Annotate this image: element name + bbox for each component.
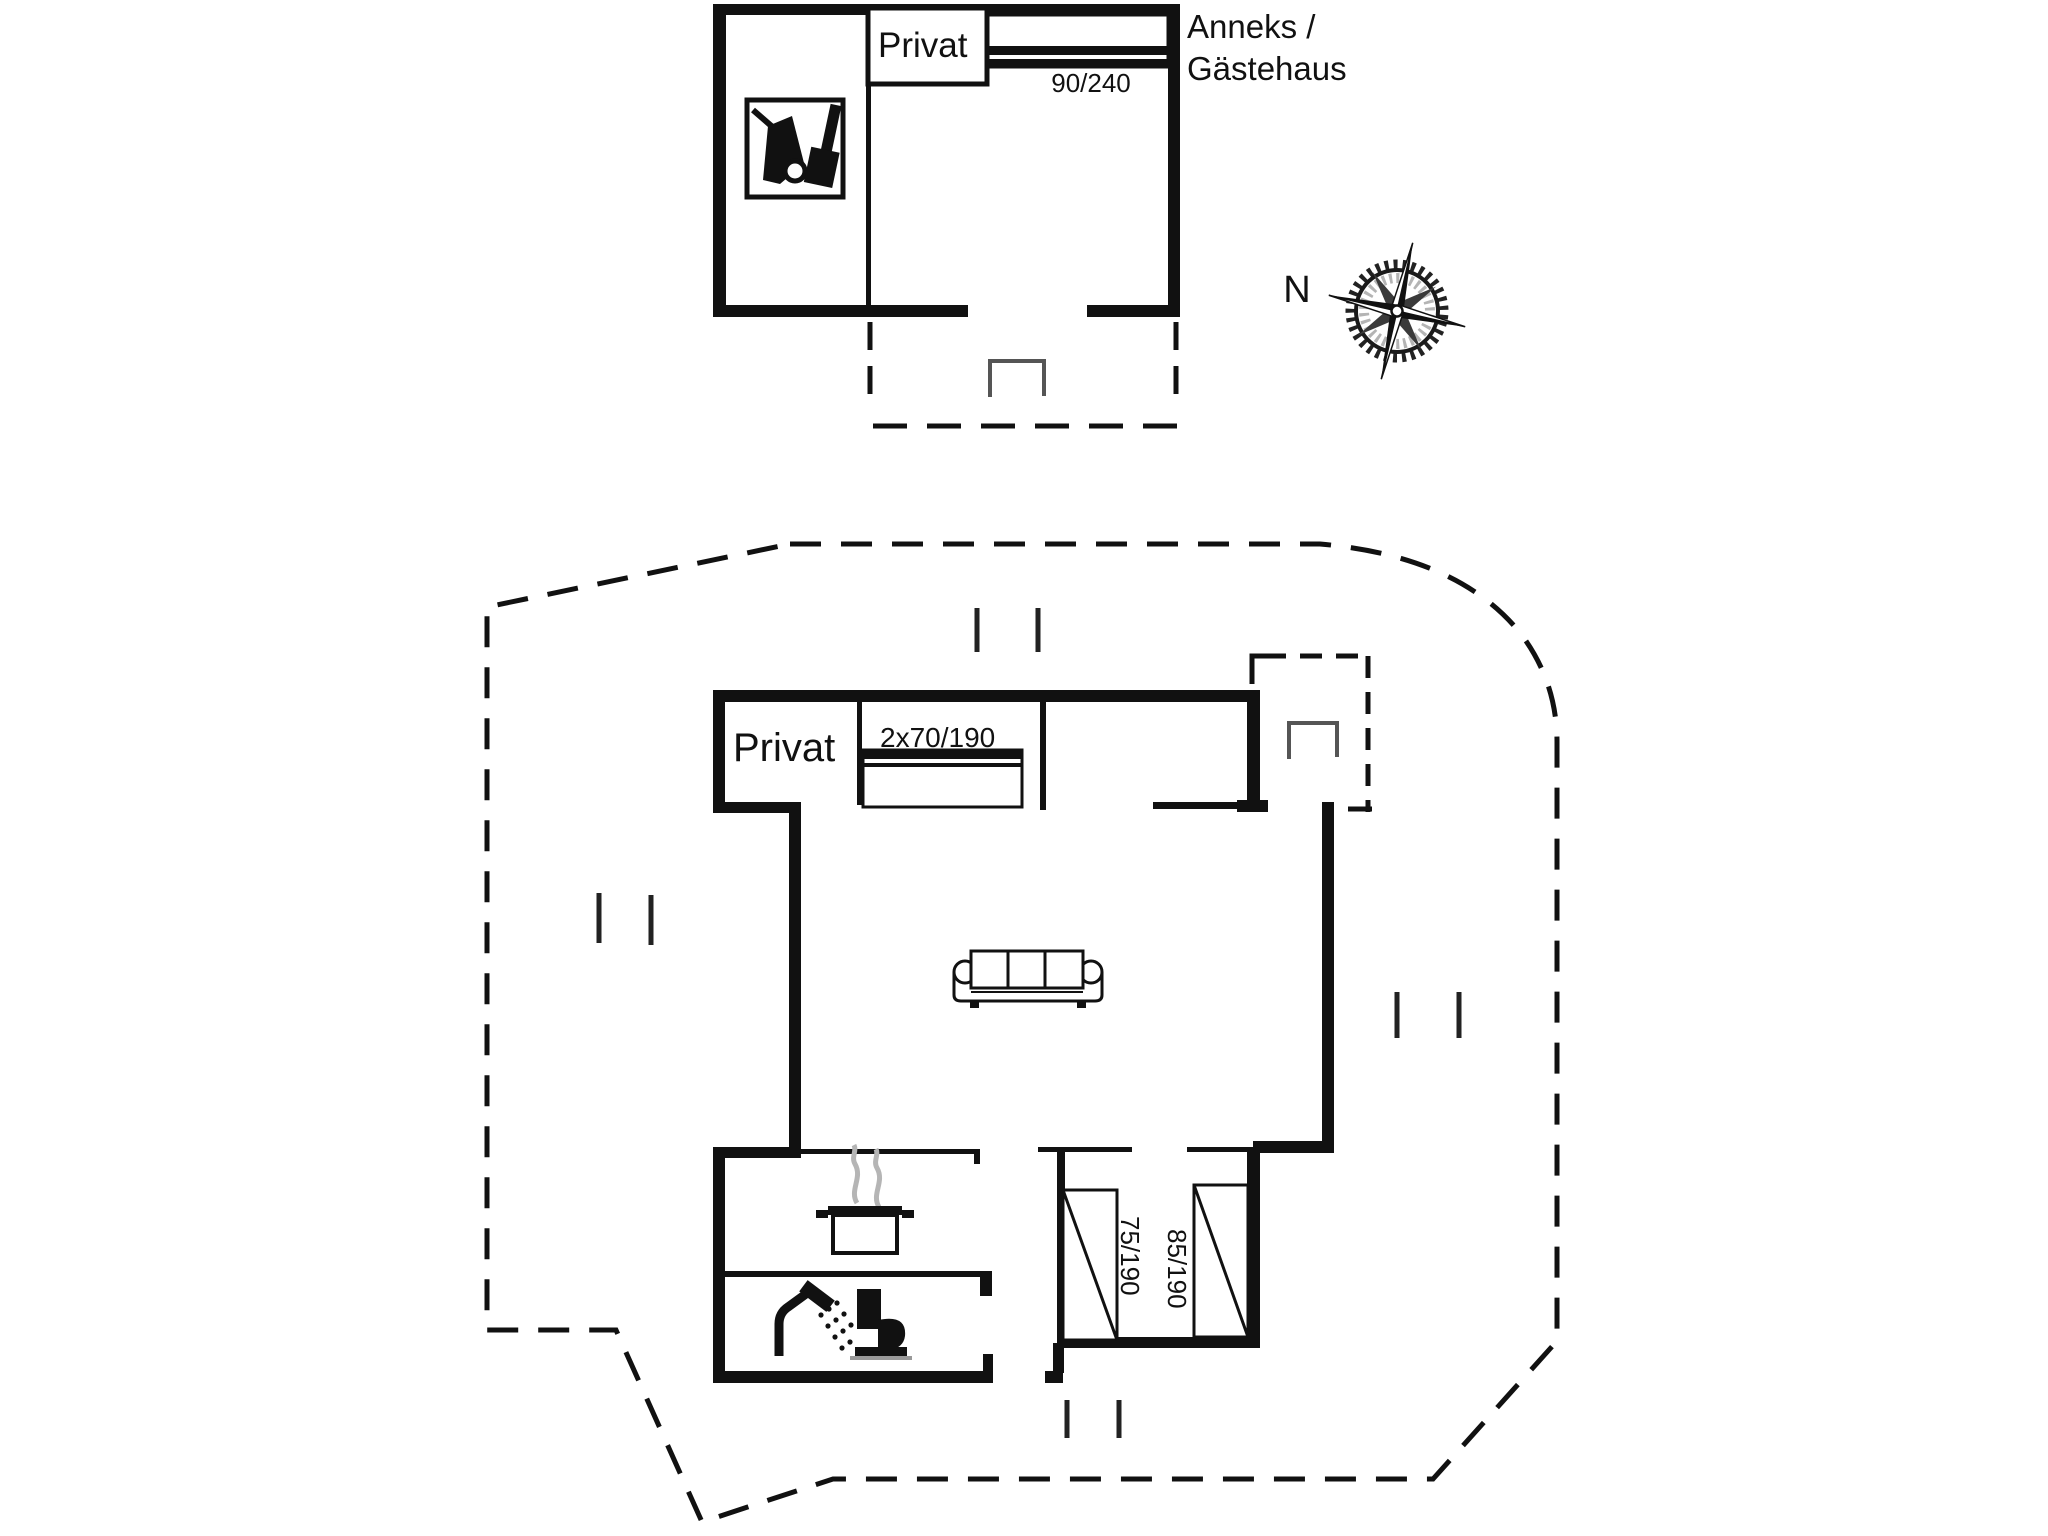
vacuum-cleaner-icon bbox=[747, 100, 849, 197]
cooking-pot-icon bbox=[816, 1206, 914, 1253]
single-bed-left: 75/190 bbox=[1063, 1190, 1145, 1340]
double-bed: 2x70/190 bbox=[863, 722, 1022, 807]
entry-porch-outline bbox=[1252, 656, 1372, 812]
shower-icon bbox=[779, 1280, 854, 1356]
toilet-icon bbox=[850, 1289, 912, 1360]
annex-title: Anneks / Gästehaus bbox=[1187, 8, 1347, 87]
annex-title-line1: Anneks / bbox=[1187, 8, 1316, 45]
single-bed-right: 85/190 bbox=[1162, 1185, 1248, 1337]
annex-bed-size-label: 90/240 bbox=[1051, 68, 1131, 98]
floor-plan-canvas: Privat 90/240 bbox=[0, 0, 2048, 1536]
annex-building: Privat 90/240 bbox=[713, 4, 1347, 426]
compass: N bbox=[1283, 227, 1481, 395]
main-room-privat-label: Privat bbox=[733, 726, 835, 770]
bed-right-label: 85/190 bbox=[1162, 1229, 1192, 1309]
double-bed-label: 2x70/190 bbox=[880, 722, 995, 753]
annex-room-label: Privat bbox=[878, 26, 968, 65]
annex-bed: 90/240 bbox=[988, 15, 1168, 98]
annex-terrace-outline bbox=[870, 322, 1180, 426]
main-house: Privat 2x70/190 bbox=[713, 656, 1372, 1383]
compass-rose-icon bbox=[1313, 227, 1481, 395]
door-swing-icon bbox=[1289, 723, 1337, 759]
annex-title-line2: Gästehaus bbox=[1187, 50, 1347, 87]
north-label: N bbox=[1283, 269, 1310, 311]
annex-door-swing-icon bbox=[990, 361, 1044, 397]
steam-icon bbox=[854, 1145, 880, 1207]
bed-left-label: 75/190 bbox=[1115, 1216, 1145, 1296]
sofa-icon bbox=[954, 951, 1102, 1008]
annex-room-privat: Privat bbox=[868, 8, 987, 84]
